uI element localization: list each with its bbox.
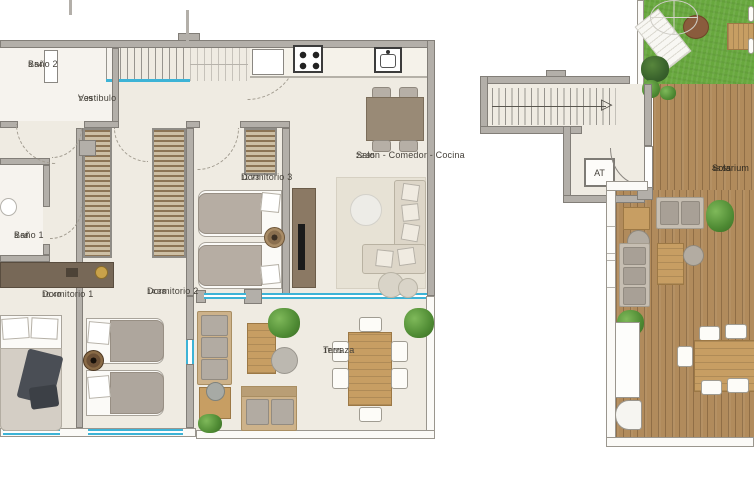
floor-plan: ▷ AT Baño 2 3.54 Vestibulo 7.39 Baño 1 3… bbox=[0, 0, 754, 498]
dresser-item bbox=[66, 268, 78, 277]
plant bbox=[660, 86, 676, 100]
outdoor-chair bbox=[391, 368, 408, 389]
window-solarium bbox=[607, 260, 615, 288]
wall-corridor-dorm3 bbox=[186, 121, 200, 128]
round-table bbox=[683, 245, 704, 266]
window-solarium bbox=[607, 226, 615, 254]
sofa-cushion bbox=[401, 203, 420, 222]
window-dorm2 bbox=[88, 429, 183, 435]
wall-hall-bottom bbox=[563, 195, 645, 203]
pouf bbox=[350, 194, 382, 226]
wall-top bbox=[0, 40, 435, 48]
nesting-table bbox=[398, 278, 418, 298]
wall-tick bbox=[69, 0, 72, 15]
sofa-cushion bbox=[401, 183, 420, 202]
sofa-cushion bbox=[623, 267, 646, 285]
stove bbox=[293, 45, 323, 73]
bed-pillow bbox=[87, 321, 111, 345]
bed-pillow bbox=[260, 264, 281, 285]
sofa-cushion bbox=[681, 201, 700, 225]
wall-stair-top bbox=[480, 76, 630, 84]
elevator-label: AT bbox=[594, 168, 605, 178]
wall-tick bbox=[186, 10, 189, 41]
bathroom1-sink bbox=[0, 198, 17, 216]
wall-dorm2-terrace bbox=[186, 364, 194, 428]
nightstand-round bbox=[264, 227, 285, 248]
wall-hall-left bbox=[563, 126, 571, 203]
sofa-cushion bbox=[271, 399, 294, 425]
sofa-cushion bbox=[375, 249, 394, 268]
parasol bbox=[650, 0, 698, 35]
outdoor-chair bbox=[359, 407, 382, 422]
planter-box bbox=[615, 322, 640, 398]
bed-duvet bbox=[198, 193, 262, 234]
bed-pillow bbox=[1, 317, 29, 340]
staircase-upper-dashed bbox=[190, 48, 248, 81]
window-dorm2-side bbox=[186, 340, 194, 364]
outdoor-chair bbox=[391, 341, 408, 362]
kitchen-cabinet bbox=[252, 49, 284, 75]
wall-bathroom1-right bbox=[43, 165, 50, 207]
lounge-chair bbox=[615, 400, 642, 430]
sink-basin bbox=[380, 54, 396, 68]
bed-duvet bbox=[110, 372, 164, 414]
outdoor-chair bbox=[332, 368, 349, 389]
sofa-cushion bbox=[201, 337, 228, 358]
sofa-cushion bbox=[623, 287, 646, 305]
wall-terrace-bottom bbox=[196, 430, 435, 439]
bed-pillow bbox=[260, 192, 281, 213]
sofa-cushion bbox=[397, 247, 416, 266]
wall-dorm2-terrace bbox=[186, 296, 194, 340]
wall-solarium-bottom bbox=[606, 437, 754, 447]
outdoor-chair bbox=[727, 378, 749, 393]
bed-pillow bbox=[30, 317, 58, 339]
wall-stair-left bbox=[480, 76, 488, 133]
coffee-table bbox=[657, 243, 684, 285]
bed-throw-blanket bbox=[29, 384, 60, 410]
sofa-l-horizontal bbox=[362, 244, 426, 274]
plant bbox=[404, 308, 434, 338]
sofa-cushion bbox=[623, 247, 646, 265]
wall-dorm3-left bbox=[186, 128, 194, 296]
nightstand-round bbox=[83, 350, 104, 371]
wall-notch bbox=[546, 70, 566, 77]
pillar-terrace bbox=[244, 289, 262, 304]
wall-top-step bbox=[178, 33, 200, 41]
plant bbox=[641, 56, 669, 82]
solarium-deck bbox=[653, 84, 754, 194]
outdoor-dining-table bbox=[348, 332, 392, 406]
wall-bathroom1-bottom bbox=[0, 255, 50, 262]
wall-bathroom2-right bbox=[112, 48, 119, 128]
outdoor-chair bbox=[725, 324, 747, 339]
wardrobe bbox=[152, 128, 186, 258]
sofa-cushion bbox=[401, 223, 421, 243]
loveseat-back bbox=[241, 386, 297, 397]
round-table bbox=[271, 347, 298, 374]
kitchen-sink bbox=[374, 47, 402, 73]
wall-hall-right bbox=[644, 84, 652, 146]
wall-bathroom2-bottom bbox=[84, 121, 119, 128]
outdoor-chair bbox=[748, 38, 754, 54]
side-table bbox=[623, 207, 650, 230]
wall-bathroom1-right bbox=[43, 244, 50, 255]
sink-faucet bbox=[386, 50, 390, 54]
wall-dorm3-right bbox=[282, 128, 290, 296]
plant bbox=[706, 200, 734, 232]
dining-table bbox=[366, 97, 424, 141]
plant bbox=[198, 414, 222, 433]
staircase-treads bbox=[492, 88, 616, 125]
sofa-cushion bbox=[246, 399, 269, 425]
outdoor-chair bbox=[748, 6, 754, 22]
wall-corridor-dorm3 bbox=[240, 121, 290, 128]
wardrobe bbox=[244, 128, 277, 175]
planter-pot bbox=[206, 382, 225, 401]
bed-duvet bbox=[198, 245, 262, 286]
tv-screen bbox=[298, 224, 305, 270]
sofa-cushion bbox=[201, 359, 228, 380]
wardrobe-column bbox=[79, 140, 96, 156]
outdoor-chair bbox=[701, 380, 722, 395]
wall-salon-right bbox=[427, 40, 435, 296]
stair-direction-arrow: ▷ bbox=[601, 97, 613, 112]
bed-pillow bbox=[87, 375, 111, 399]
lamp bbox=[95, 266, 108, 279]
outdoor-chair bbox=[359, 317, 382, 332]
bed-duvet bbox=[110, 320, 164, 362]
outdoor-chair bbox=[699, 326, 720, 341]
sofa-cushion bbox=[660, 201, 679, 225]
plant bbox=[268, 308, 300, 338]
window-salon-terrace bbox=[204, 293, 246, 299]
sofa-cushion bbox=[201, 315, 228, 336]
outdoor-chair bbox=[677, 346, 693, 367]
